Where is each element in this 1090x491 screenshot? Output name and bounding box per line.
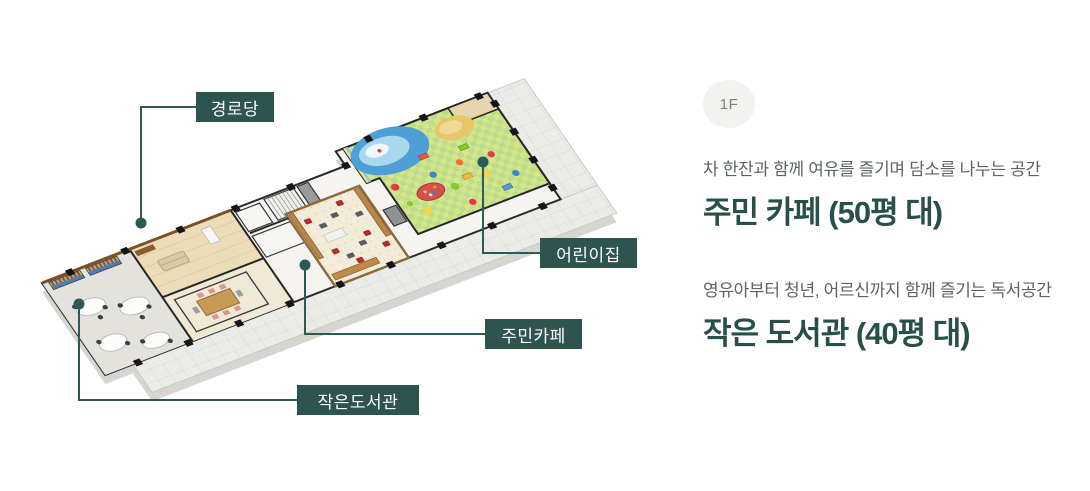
plan-label-senior-center: 경로당 [196,92,274,122]
floor-info-section: 경로당 어린이집 주민카페 작은도서관 1F 차 한잔과 함께 여유를 즐기며 … [0,0,1090,491]
dot-daycare [478,157,489,168]
floor-badge: 1F [703,80,755,128]
plan-label-resident-cafe: 주민카페 [485,319,582,349]
floor-badge-label: 1F [720,96,739,113]
dot-resident-cafe [300,260,311,271]
library-subtitle: 영유아부터 청년, 어르신까지 함께 즐기는 독서공간 [703,276,1052,301]
dot-small-library [74,299,85,310]
cafe-subtitle: 차 한잔과 함께 여유를 즐기며 담소를 나누는 공간 [703,155,1041,180]
plan-label-daycare: 어린이집 [540,238,637,268]
floorplan: 경로당 어린이집 주민카페 작은도서관 [0,0,670,491]
library-title: 작은 도서관 (40평 대) [703,308,1052,353]
leader-senior-center [141,107,196,223]
info-section-cafe: 차 한잔과 함께 여유를 즐기며 담소를 나누는 공간 주민 카페 (50평 대… [703,155,1041,232]
info-panel: 1F 차 한잔과 함께 여유를 즐기며 담소를 나누는 공간 주민 카페 (50… [690,0,1090,491]
cafe-title: 주민 카페 (50평 대) [703,187,1041,232]
plan-iso-group [29,75,616,403]
plan-label-small-library: 작은도서관 [297,385,419,415]
info-section-library: 영유아부터 청년, 어르신까지 함께 즐기는 독서공간 작은 도서관 (40평 … [703,276,1052,353]
dot-senior-center [136,218,147,229]
